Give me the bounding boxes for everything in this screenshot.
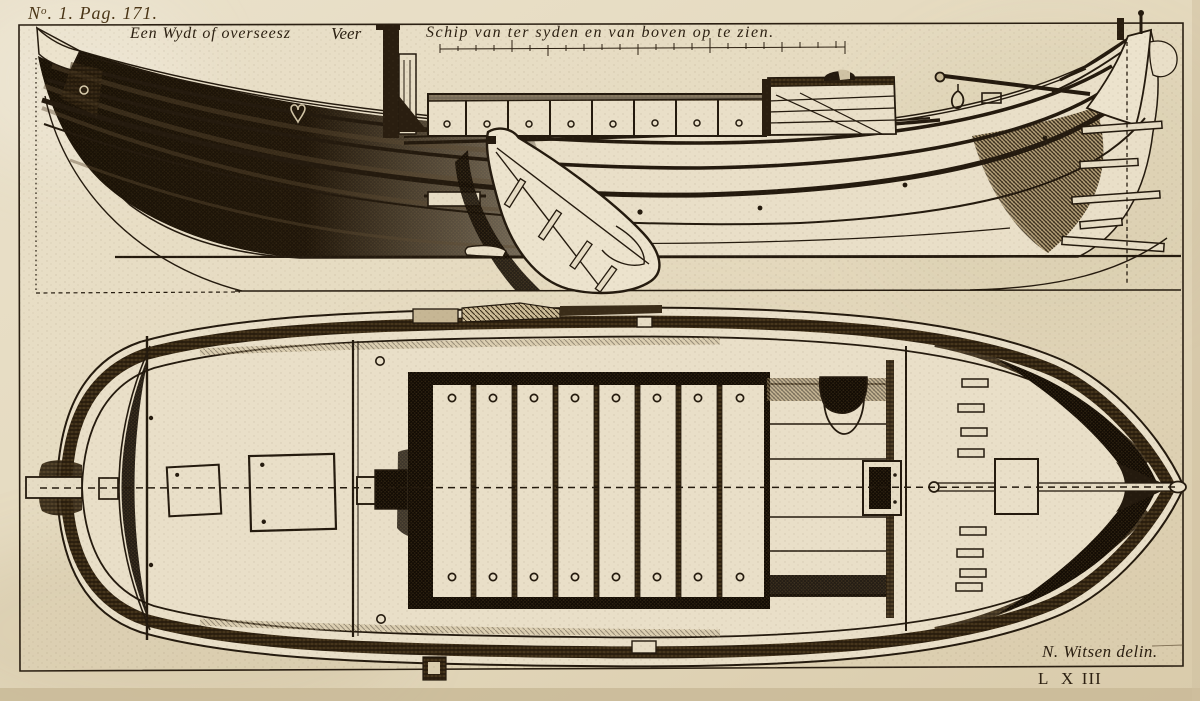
- svg-text:L XIII: L XIII: [1038, 669, 1102, 688]
- svg-text:N. Witsen delin.: N. Witsen delin.: [1041, 642, 1158, 661]
- svg-text:No. 1. Pag. 171.: No. 1. Pag. 171.: [27, 3, 158, 23]
